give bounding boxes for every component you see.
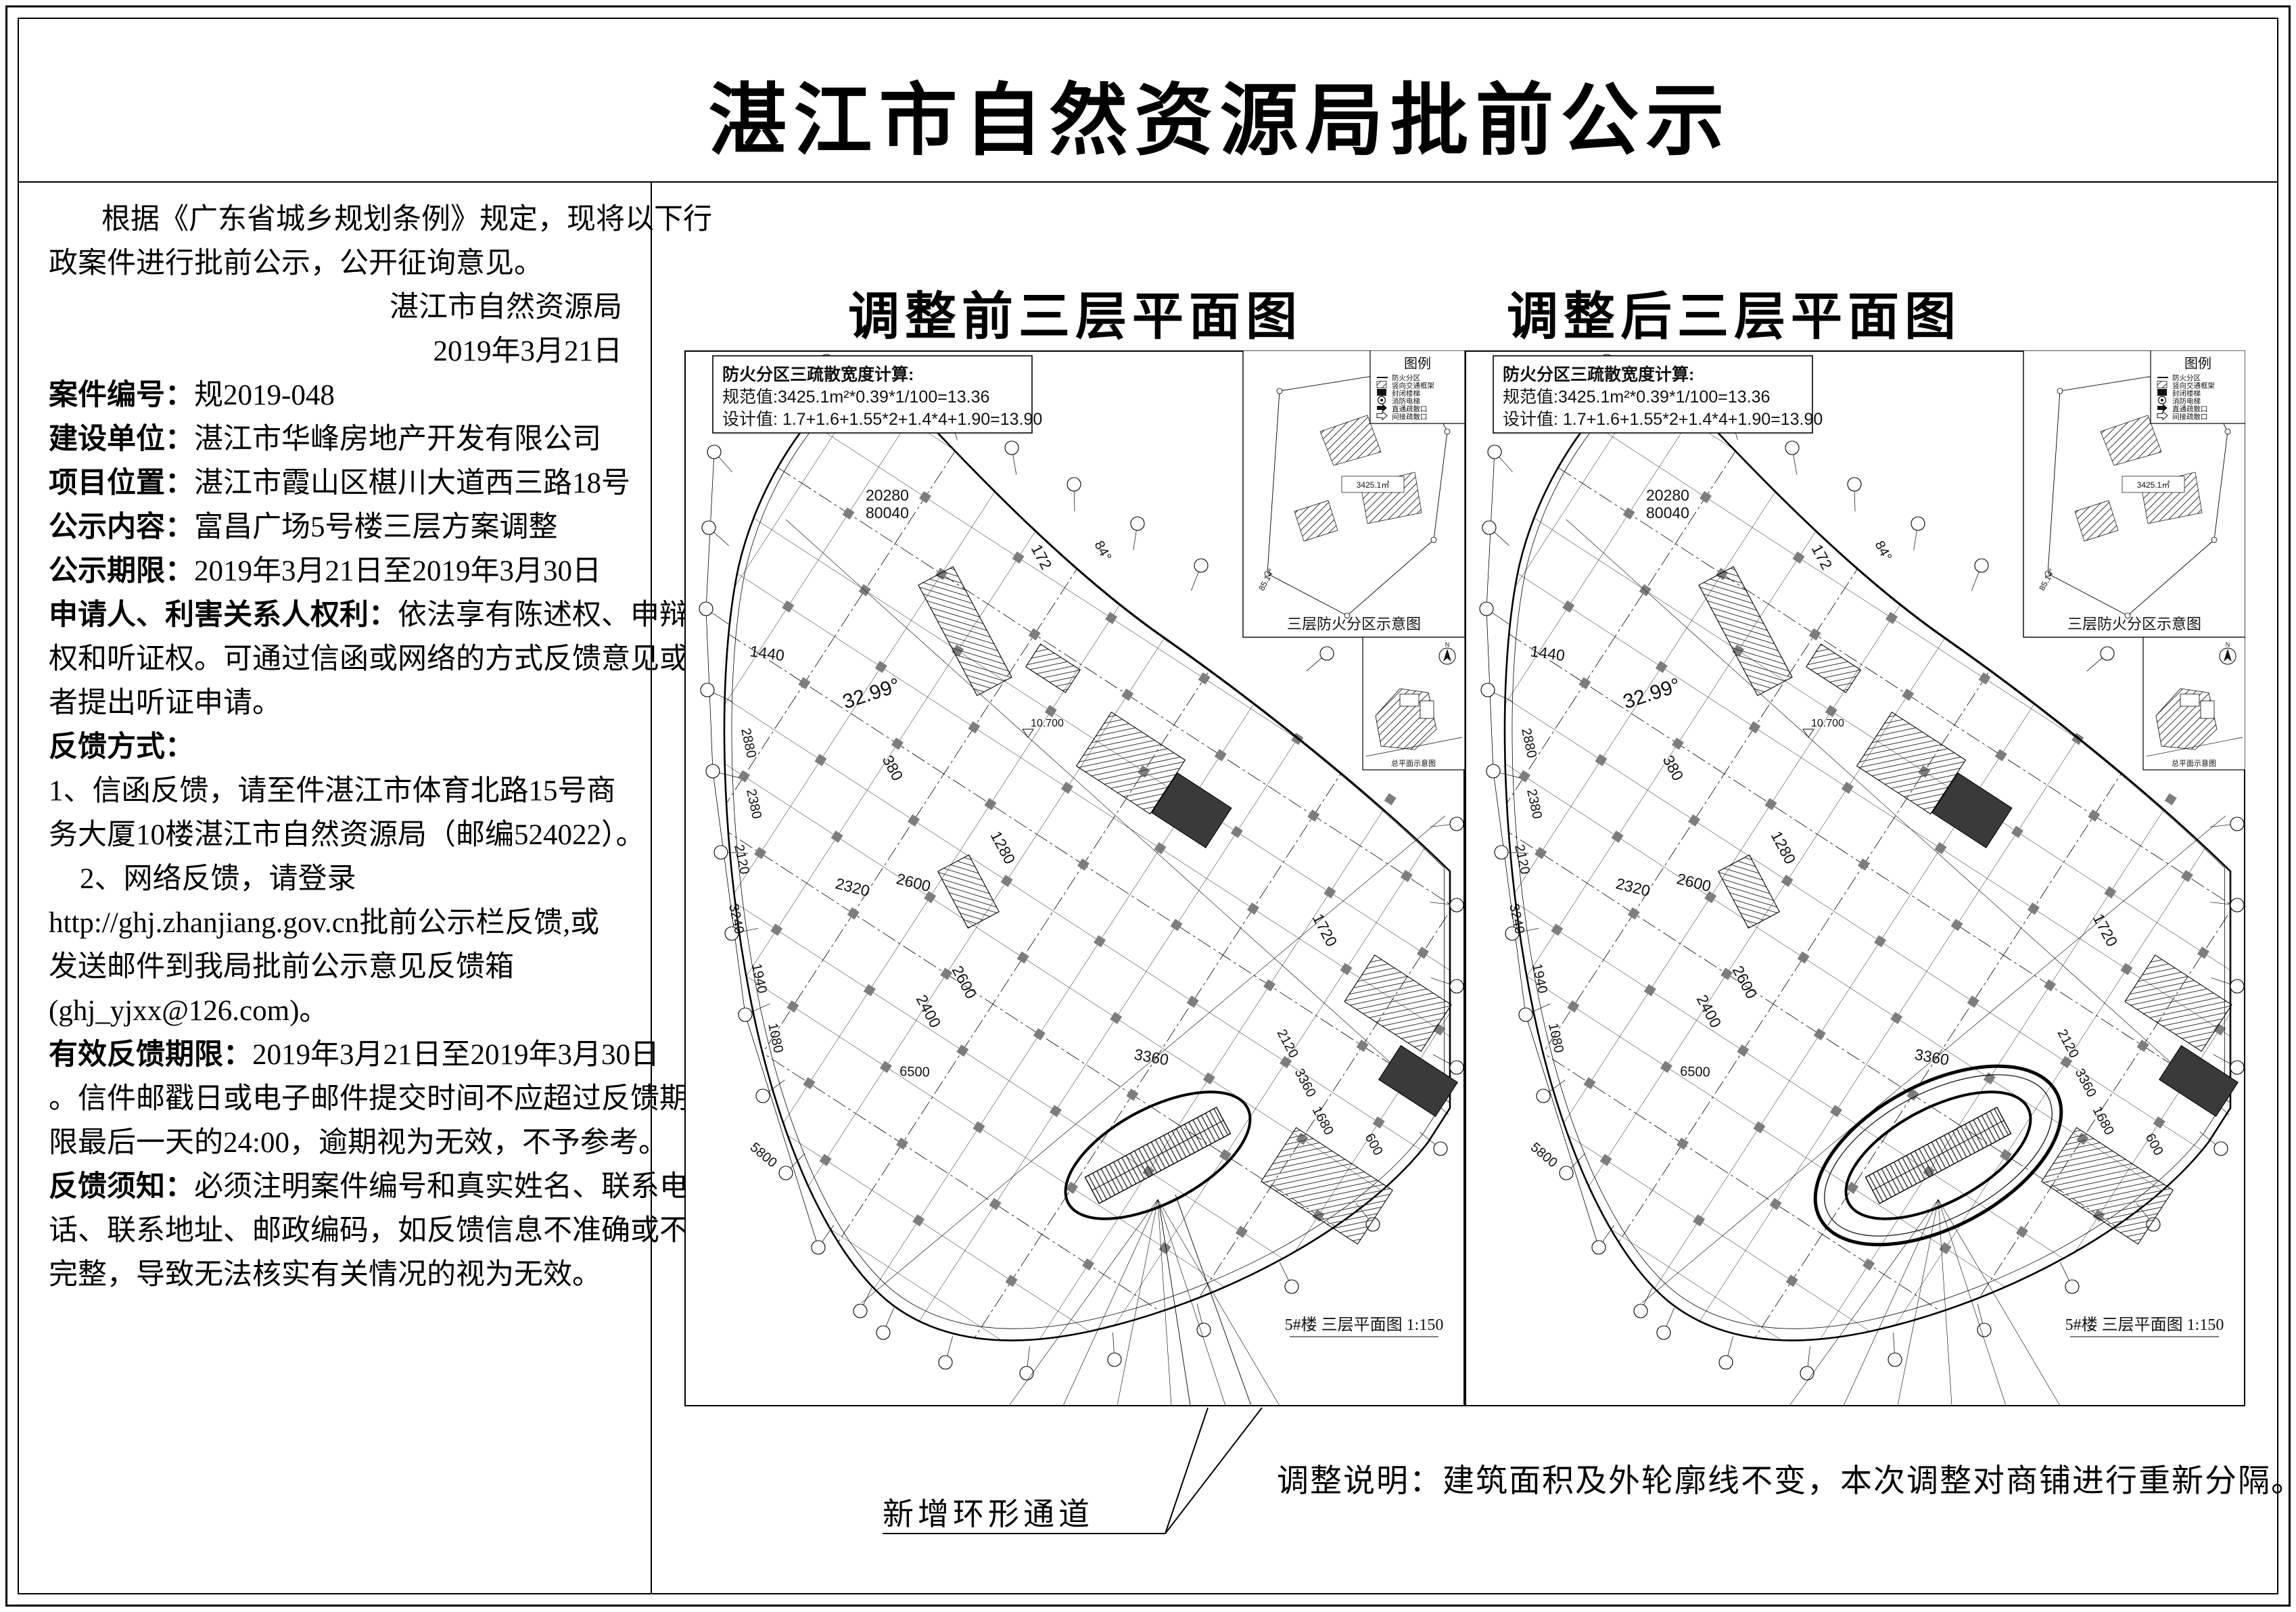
svg-text:80040: 80040: [866, 504, 909, 522]
notice-line: 者提出听证申请。: [49, 681, 644, 725]
svg-text:总平面示意图: 总平面示意图: [1391, 758, 1436, 768]
floor-plan-before: 防火分区三疏散宽度计算:规范值:3425.1m²*0.39*1/100=13.3…: [684, 350, 1465, 1406]
public-notice-page: 湛江市自然资源局批前公示 根据《广东省城乡规划条例》规定，现将以下行 政案件进行…: [0, 0, 2296, 1612]
svg-text:间接疏散口: 间接疏散口: [1392, 413, 1428, 421]
adjustment-note: 调整说明：建筑面积及外轮廓线不变，本次调整对商铺进行重新分隔。: [1277, 1454, 2296, 1501]
svg-text:防火分区: 防火分区: [1392, 373, 1420, 382]
notice-line: 2、网络反馈，请登录: [49, 857, 644, 901]
notice-line: 务大厦10楼湛江市自然资源局（邮编524022）。: [49, 813, 644, 857]
notice-line: 权和听证权。可通过信函或网络的方式反馈意见或: [49, 637, 644, 681]
svg-text:竖向交通框架: 竖向交通框架: [2172, 382, 2215, 390]
svg-text:5#楼 三层平面图 1:150: 5#楼 三层平面图 1:150: [2065, 1316, 2224, 1334]
svg-text:5#楼 三层平面图 1:150: 5#楼 三层平面图 1:150: [1285, 1316, 1444, 1334]
floor-plan-after: 防火分区三疏散宽度计算:规范值:3425.1m²*0.39*1/100=13.3…: [1465, 350, 2245, 1406]
notice-line-url: http://ghj.zhanjiang.gov.cn批前公示栏反馈,或: [49, 901, 644, 945]
svg-text:规范值:3425.1m²*0.39*1/100=13.36: 规范值:3425.1m²*0.39*1/100=13.36: [1503, 388, 1770, 407]
notice-line: 反馈须知：必须注明案件编号和真实姓名、联系电: [49, 1165, 644, 1209]
notice-line-signature: 湛江市自然资源局: [49, 285, 644, 329]
svg-text:三层防火分区示意图: 三层防火分区示意图: [2067, 616, 2201, 632]
ring-corridor-note: 新增环形通道: [883, 1490, 1094, 1534]
svg-text:直通疏散口: 直通疏散口: [1392, 405, 1428, 413]
notice-line-location: 项目位置：湛江市霞山区椹川大道西三路18号: [49, 461, 644, 505]
svg-text:封闭楼梯: 封闭楼梯: [1392, 389, 1420, 398]
svg-text:10.700: 10.700: [1031, 718, 1064, 729]
svg-text:N: N: [1445, 641, 1450, 648]
svg-text:三层防火分区示意图: 三层防火分区示意图: [1287, 616, 1421, 632]
svg-text:竖向交通框架: 竖向交通框架: [1392, 382, 1434, 390]
notice-line: 政案件进行批前公示，公开征询意见。: [49, 241, 644, 285]
svg-text:封闭楼梯: 封闭楼梯: [2172, 389, 2201, 398]
svg-text:20280: 20280: [1646, 486, 1689, 504]
notice-line-date: 2019年3月21日: [49, 329, 644, 373]
plan-title-before: 调整前三层平面图: [832, 275, 1319, 349]
svg-text:6500: 6500: [1680, 1064, 1710, 1080]
svg-text:80040: 80040: [1646, 504, 1689, 522]
notice-line: 限最后一天的24:00，逾期视为无效，不予参考。: [49, 1121, 644, 1165]
svg-text:图例: 图例: [2184, 356, 2211, 371]
svg-text:防火分区: 防火分区: [2172, 373, 2201, 382]
title-divider: [18, 181, 2278, 183]
svg-text:间接疏散口: 间接疏散口: [2172, 413, 2208, 421]
notice-text-block: 根据《广东省城乡规划条例》规定，现将以下行 政案件进行批前公示，公开征询意见。 …: [49, 198, 644, 1297]
notice-line-case-no: 案件编号：规2019-048: [49, 373, 644, 417]
svg-text:规范值:3425.1m²*0.39*1/100=13.36: 规范值:3425.1m²*0.39*1/100=13.36: [722, 388, 989, 407]
svg-text:防火分区三疏散宽度计算:: 防火分区三疏散宽度计算:: [1503, 365, 1694, 384]
notice-line: 反馈方式：: [49, 725, 644, 769]
svg-text:直通疏散口: 直通疏散口: [2172, 405, 2208, 413]
notice-line: 根据《广东省城乡规划条例》规定，现将以下行: [49, 198, 644, 241]
page-title: 湛江市自然资源局批前公示: [72, 57, 2296, 170]
svg-text:设计值: 1.7+1.6+1.55*2+1.4*4+1.90: 设计值: 1.7+1.6+1.55*2+1.4*4+1.90=13.90: [1503, 410, 1823, 429]
svg-text:N: N: [2226, 641, 2230, 648]
notice-line-period: 公示期限：2019年3月21日至2019年3月30日: [49, 549, 644, 593]
svg-text:3425.1㎡: 3425.1㎡: [2137, 480, 2170, 490]
svg-text:消防电梯: 消防电梯: [1392, 397, 1420, 406]
notice-line-builder: 建设单位：湛江市华峰房地产开发有限公司: [49, 417, 644, 461]
notice-line-email: (ghj_yjxx@126.com)。: [49, 989, 644, 1033]
svg-text:图例: 图例: [1404, 356, 1431, 371]
notice-line: 。信件邮戳日或电子邮件提交时间不应超过反馈期: [49, 1077, 644, 1121]
svg-text:防火分区三疏散宽度计算:: 防火分区三疏散宽度计算:: [722, 365, 914, 384]
notice-line: 有效反馈期限：2019年3月21日至2019年3月30日: [49, 1033, 644, 1077]
svg-text:设计值: 1.7+1.6+1.55*2+1.4*4+1.90: 设计值: 1.7+1.6+1.55*2+1.4*4+1.90=13.90: [722, 410, 1042, 429]
column-divider: [651, 181, 652, 1594]
notice-line: 1、信函反馈，请至件湛江市体育北路15号商: [49, 769, 644, 813]
svg-text:消防电梯: 消防电梯: [2172, 397, 2201, 406]
svg-text:3425.1㎡: 3425.1㎡: [1357, 480, 1390, 490]
svg-text:总平面示意图: 总平面示意图: [2172, 758, 2216, 768]
notice-line: 发送邮件到我局批前公示意见反馈箱: [49, 945, 644, 989]
svg-text:20280: 20280: [866, 486, 909, 504]
plan-title-after: 调整后三层平面图: [1487, 275, 1981, 349]
svg-text:10.700: 10.700: [1811, 718, 1844, 729]
notice-line: 申请人、利害关系人权利：依法享有陈述权、申辩: [49, 593, 644, 637]
notice-line: 话、联系地址、邮政编码，如反馈信息不准确或不: [49, 1209, 644, 1253]
notice-line: 完整，导致无法核实有关情况的视为无效。: [49, 1253, 644, 1297]
svg-text:6500: 6500: [899, 1064, 930, 1080]
notice-line-content: 公示内容：富昌广场5号楼三层方案调整: [49, 505, 644, 549]
